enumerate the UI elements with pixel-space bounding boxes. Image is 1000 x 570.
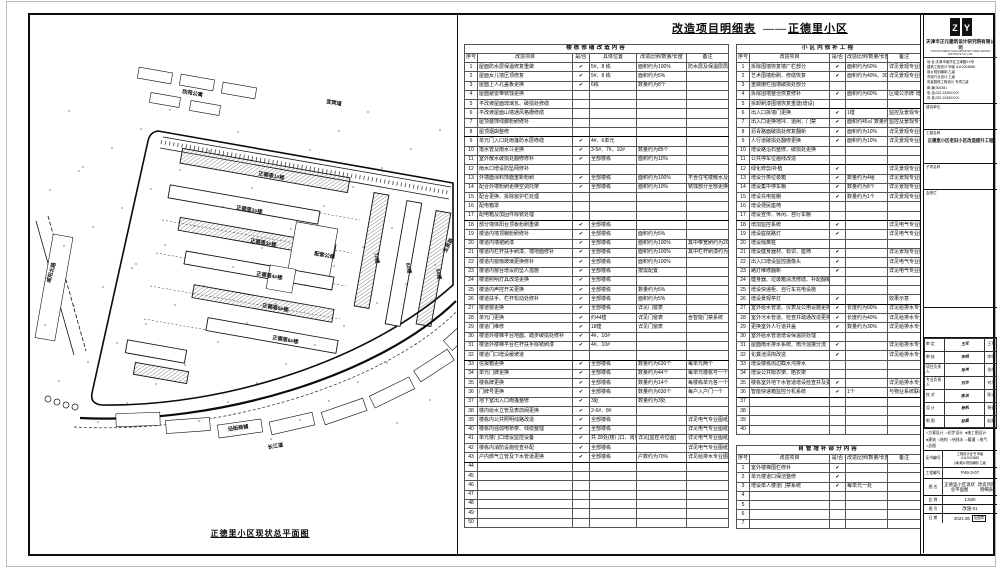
cell: 面积约为100% [637, 248, 687, 257]
cell [637, 332, 687, 341]
cell [637, 202, 687, 211]
cell: 其中栏杆刷漆约为20% [687, 248, 729, 257]
cell: 数量约为5% [637, 286, 687, 295]
cell: 效果示意 [888, 295, 921, 304]
cell: 楼道扶手、栏杆松动处修补 [478, 295, 573, 304]
cell [687, 128, 729, 137]
cell: 长度约为40% [846, 314, 888, 323]
table-row: 48 [465, 499, 729, 508]
sheet-title-sub: 正德里小区 [788, 23, 848, 35]
cell: 全部楼栋 [590, 360, 637, 369]
row-number: 13 [737, 174, 750, 183]
check-empty [573, 109, 590, 118]
cell [846, 425, 888, 434]
row-number: 5 [737, 501, 750, 510]
cell [846, 202, 888, 211]
row-number: 37 [737, 397, 750, 406]
signature-print: 刘华 [985, 377, 997, 390]
cell [846, 341, 888, 350]
sheet-number-label: 图 号 [924, 505, 943, 513]
cell [478, 518, 573, 527]
row-number: 32 [737, 351, 750, 360]
check-empty [830, 491, 846, 500]
cell: 全部楼栋 [590, 369, 637, 378]
check-empty [830, 416, 846, 425]
cell: 5#、8 栋 [590, 63, 637, 72]
cell: 数量约为8个 [637, 81, 687, 90]
table-row: 34增设公共晾衣架、晒衣架 [737, 369, 921, 378]
cell [750, 519, 830, 528]
check-mark: ✔ [573, 332, 590, 341]
cell [846, 295, 888, 304]
cell: 健身器、垃圾箱清洗修缮、补配翻新 [750, 276, 830, 285]
cell: 监控及景观专业图纸 [888, 118, 921, 127]
cell [687, 276, 729, 285]
table-row: 7屋顶装饰线脚粉刷修补 [465, 118, 729, 127]
cell: 全部楼栋 [590, 388, 637, 397]
row-number: 9 [737, 137, 750, 146]
check-empty [573, 351, 590, 360]
row-number: 38 [465, 406, 478, 415]
check-empty [830, 397, 846, 406]
cell [750, 416, 830, 425]
check-mark: ✔ [830, 351, 846, 360]
table-row: 39楼栋内公共照明线路改造✔全部楼栋详见电气专业图纸 [465, 416, 729, 425]
table-row: 8屋顶烟囱整修 [465, 128, 729, 137]
cell: 绿化修剪/补植 [750, 165, 830, 174]
check-mark: ✔ [573, 267, 590, 276]
column-header: 备注 [687, 54, 729, 63]
row-number: 5 [737, 100, 750, 109]
check-empty [830, 360, 846, 369]
cell: 外墙面涂料饰面重新粉刷 [478, 174, 573, 183]
cell [888, 482, 921, 491]
column-header: 是/否 [830, 54, 846, 63]
column-header: 改造项目 [478, 54, 573, 63]
table-row: 11公共停车位画线改造 [737, 155, 921, 164]
cell: 详见电气专业图纸 [687, 444, 729, 453]
cell: 全部楼栋 [590, 295, 637, 304]
table-row: 8沥青路面破损处修复翻新✔面积约为10%详见景观专业图纸 [737, 128, 921, 137]
cell [888, 286, 921, 295]
cell: 楼道内墙裙刷漆 [478, 239, 573, 248]
check-mark: ✔ [830, 314, 846, 323]
table-row: 40楼栋内强弱电桥架、线缆整理✔全部楼栋详见电气专业图纸 [465, 425, 729, 434]
building [179, 74, 214, 91]
row-number: 20 [465, 239, 478, 248]
certificate-label: 证书编号 [924, 451, 943, 467]
cell [637, 444, 687, 453]
cell: 单元门更换 [478, 314, 573, 323]
cell: 楼道内栏杆扶手刷漆、墙地面修补 [478, 248, 573, 257]
check-mark: ✔ [573, 388, 590, 397]
cell [590, 109, 637, 118]
sheet-number-row: 图 号 改施-01 [924, 505, 997, 514]
cell [637, 137, 687, 146]
cell: 详见景观专业图纸 [888, 63, 921, 72]
cell: 增设景观亭灯 [750, 295, 830, 304]
table-row: 44 [465, 462, 729, 471]
table-row: 35楼栋室外地下水管道增设检查井及更换✔详见给排水专业图纸 [737, 379, 921, 388]
table-row: 15增设充电桩棚✔数量约为1个详见景观专业图纸 [737, 193, 921, 202]
table-row: 6平改坡屋面山墙通风格栅修缮 [465, 109, 729, 118]
cell [846, 397, 888, 406]
cell: 拆除围墙整治恢复修补 [750, 90, 830, 99]
project-sections: 建设单位工程名称正德里小区老旧小区改造提升工程子项名称会签栏 [924, 104, 997, 338]
cell: 全部楼栋 [590, 155, 637, 164]
cell [888, 425, 921, 434]
row-number: 7 [465, 118, 478, 127]
cell [888, 406, 921, 415]
cell [687, 202, 729, 211]
cell [590, 518, 637, 527]
cell: 屋顶装饰线脚粉刷修补 [478, 118, 573, 127]
table-row: 21增设健身器材、标识、座椅✔详见景观专业图纸 [737, 248, 921, 257]
row-number: 14 [737, 183, 750, 192]
date-value: 2021.06 出图章 [943, 514, 997, 523]
cell: 防水层及保温层局部重做 [687, 63, 729, 72]
table-header-row: 序号改造项目是/否改造比例/数量/长度备注 [737, 54, 921, 63]
cell: 户内燃气立管及下水管道更换 [478, 453, 573, 462]
signature-print: 杨帆 [985, 402, 997, 415]
row-number: 48 [465, 499, 478, 508]
row-number: 29 [737, 323, 750, 332]
cell [846, 501, 888, 510]
cell: 详见景观专业图纸 [888, 137, 921, 146]
cell: 室外给水管道、仪表及公用设施更换 [750, 304, 830, 313]
cell: 增设便民座椅 [750, 202, 830, 211]
cell: 面积约为5% [637, 230, 687, 239]
signature-role: 制 图 [925, 415, 945, 428]
row-number: 28 [737, 314, 750, 323]
check-mark: ✔ [573, 72, 590, 81]
column-header: 改造比例/数量/长度 [637, 54, 687, 63]
cell [846, 100, 888, 109]
check-mark: ✔ [573, 137, 590, 146]
cell [888, 519, 921, 528]
cell: 每单元两个 [687, 360, 729, 369]
cell [590, 472, 637, 481]
row-number: 47 [465, 490, 478, 499]
check-empty [830, 276, 846, 285]
cell: 增加监控系统 [750, 221, 830, 230]
row-number: 21 [465, 248, 478, 257]
check-empty [830, 519, 846, 528]
cell: 增设宣传、休闲、自行车棚 [750, 211, 830, 220]
cell: 全部楼栋 [590, 425, 637, 434]
cell: 全部楼栋 [590, 304, 637, 313]
cell [637, 109, 687, 118]
cell [687, 304, 729, 313]
table-row: 36智能快递箱监控分机系统✔1个与物业系统联动 2021.06.24 [737, 388, 921, 397]
cell: 全部楼栋 [590, 453, 637, 462]
table-row: 6 [737, 510, 921, 519]
map-label: 长江道 [267, 440, 285, 451]
row-number: 40 [737, 425, 750, 434]
check-mark: ✔ [830, 267, 846, 276]
cell [637, 490, 687, 499]
table-row: 21楼道内栏杆扶手刷漆、墙地面修补✔全部楼栋面积约为100%其中栏杆刷漆约为20… [465, 248, 729, 257]
row-number: 11 [465, 155, 478, 164]
cell [750, 501, 830, 510]
cell: 拆卸刷漆围墙恢复重建(增设) [750, 100, 830, 109]
project-number-value: P46-3-07 [943, 468, 997, 478]
row-number: 30 [465, 332, 478, 341]
community-repair-table: 小区内修补工程 序号改造项目是/否改造比例/数量/长度备注 1拆除围墙恢复墙厂栏… [736, 44, 921, 435]
check-empty [573, 499, 590, 508]
check-mark: ✔ [573, 397, 590, 406]
building [137, 67, 172, 84]
row-number: 1 [737, 63, 750, 72]
cell: 路灯维修翻新 [750, 267, 830, 276]
table-row: 38 [737, 406, 921, 415]
cell [846, 155, 888, 164]
cell: 智能快递箱监控分机系统 [750, 388, 830, 397]
check-empty [830, 406, 846, 415]
row-number: 46 [465, 481, 478, 490]
cell: 落水管及雨水斗更换 [478, 146, 573, 155]
company-logo-icon: Z Y [950, 18, 972, 36]
check-mark: ✔ [830, 473, 846, 482]
building [385, 201, 421, 327]
cell: 详见门窗表 [637, 304, 687, 313]
section-子项名称: 子项名称 [924, 164, 997, 190]
cell [687, 211, 729, 220]
check-mark: ✔ [830, 323, 846, 332]
table-row: 30楼道外楼梯平台地面、踏步破损处修补✔4#、10# [465, 332, 729, 341]
check-mark: ✔ [830, 464, 846, 473]
cell: 数量约为44个 [637, 369, 687, 378]
signature-role: 审 核 [925, 351, 945, 364]
map-caption: 正德里小区现状总平面图 [150, 528, 370, 539]
row-number: 4 [737, 90, 750, 99]
check-mark: ✔ [573, 406, 590, 415]
row-number: 39 [737, 416, 750, 425]
column-header: 序号 [737, 54, 750, 63]
table-row: 42楼栋内消防设施检查补配✔全部楼栋详见电气专业图纸 [465, 444, 729, 453]
table-row: 32楼道门口增设缓坡道 [465, 351, 729, 360]
cell: 详见电气专业图纸 [687, 425, 729, 434]
row-number: 33 [737, 360, 750, 369]
project-number-row: 工程编号 P46-3-07 [924, 468, 997, 479]
table-row: 31屋面雨水排水系统、雨污混接分流✔详见给排水专业图纸 [737, 341, 921, 350]
building [288, 222, 338, 277]
signature-row: 专业负责人刘华刘华 [925, 377, 997, 390]
cell [846, 510, 888, 519]
cell [687, 518, 729, 527]
check-mark: ✔ [573, 295, 590, 304]
cell [637, 221, 687, 230]
table-row: 24健身器、垃圾箱清洗修缮、补配翻新 [737, 276, 921, 285]
check-mark: ✔ [830, 63, 846, 72]
cell: 数量约为3处 [637, 397, 687, 406]
table-row: 13增设分类垃圾箱✔数量约为4组详见景观专业图纸 [737, 174, 921, 183]
row-number: 34 [737, 369, 750, 378]
check-empty [830, 425, 846, 434]
row-number: 12 [737, 165, 750, 174]
cell: 门牌号更换 [478, 388, 573, 397]
check-empty [830, 286, 846, 295]
check-empty [830, 100, 846, 109]
building [149, 92, 180, 107]
cell: 楼栋室外地下水管道增设检查井及更换 [750, 379, 830, 388]
cell: 长度约为60% [846, 304, 888, 313]
check-mark: ✔ [830, 118, 846, 127]
cell: 屋面上人孔盖板更换 [478, 81, 573, 90]
row-number: 6 [737, 510, 750, 519]
cell: 户数约为70% [637, 453, 687, 462]
check-empty [573, 481, 590, 490]
cell: 面积约为10% [637, 155, 687, 164]
building [116, 412, 160, 427]
cell [888, 416, 921, 425]
cell [846, 286, 888, 295]
table-row: 26增设景观亭灯✔效果示意 [737, 295, 921, 304]
building-renovation-table: 楼栋修缮改造内容 序号改造项目是/否具体位置改造比例/数量/长度备注 1屋面防水… [464, 44, 729, 528]
check-mark: ✔ [573, 230, 590, 239]
table-row: 10增设路沿石整修、破损处更换 [737, 146, 921, 155]
company-contact: 地 址:天津市南开区卫津路XX号建筑工程设计 甲级 A112003688城乡规划… [924, 58, 997, 104]
table-row: 25楼道内声控开关更换✔全部楼栋数量约为5% [465, 286, 729, 295]
cell: 全部楼栋 [590, 416, 637, 425]
svg-text:Z: Z [952, 23, 958, 33]
row-number: 23 [737, 267, 750, 276]
cell: 单元楼门口增设监控设备 [478, 434, 573, 443]
table-row: 23楼道内窗台增设防坠人措施✔全部楼栋按需配置 [465, 267, 729, 276]
signature-print: 王军 [985, 338, 997, 351]
cell [846, 332, 888, 341]
cell [846, 258, 888, 267]
table-row: 15配合更换、拆除窗护栏处理 [465, 193, 729, 202]
cell: 公共停车位画线改造 [750, 155, 830, 164]
cell [478, 472, 573, 481]
title-block: Z Y 天津市正元建筑设计研究院有限公司 TIANJIN ZHENGYUAN A… [923, 15, 997, 553]
table-row: 45 [465, 472, 729, 481]
cell: 增设健身器材、标识、座椅 [750, 248, 830, 257]
certificate-section: 证书编号 工程设计证书 甲级A112003688(津)城乡规划编制 乙级 [924, 451, 997, 468]
cell [590, 462, 637, 471]
cell [687, 351, 729, 360]
cell: 全部楼栋 [590, 221, 637, 230]
table-row: 2艺术围墙粉刷、修缮恢复✔面积约为40%、30%详见景观专业图纸 [737, 72, 921, 81]
drawing-sheet: 宜宾道咸阳北路长江道玉泉路正德里1#楼正德里2#楼正德里3#楼正德里4#楼正德里… [0, 0, 1000, 570]
cell [846, 276, 888, 285]
signature-print: 赵磊 [985, 415, 997, 428]
building [269, 412, 315, 435]
cell [590, 128, 637, 137]
cell [687, 286, 729, 295]
row-number: 16 [465, 202, 478, 211]
cell [478, 499, 573, 508]
cell [637, 351, 687, 360]
cell: 详见景观专业图纸 [888, 193, 921, 202]
cell: 配合外墙粉刷更换空调托架 [478, 183, 573, 192]
cell: 楼栋内强弱电桥架、线缆整理 [478, 425, 573, 434]
cell [637, 118, 687, 127]
table-row: 41单元楼门口增设监控设备✔共 28处(楼门口、周界)详见[监控点位图]详见电气… [465, 434, 729, 443]
table-row: 27室外给水管道、仪表及公用设施更换✔长度约为60%详见给排水专业图纸 [737, 304, 921, 313]
table-row: 12绿化修剪/补植✔详见景观专业图纸 [737, 165, 921, 174]
table-row: 6出入口拆墙门更换✔1樘监控及景观专业图纸 [737, 109, 921, 118]
cell: 详见[监控点位图] [637, 434, 687, 443]
row-number: 19 [737, 230, 750, 239]
cell [888, 397, 921, 406]
cell: 详见电气专业图纸 [687, 416, 729, 425]
row-number: 35 [465, 379, 478, 388]
sheet-name-value: 正德里小区现状总平面图改造项目明细表 [943, 479, 997, 495]
row-number: 32 [465, 351, 478, 360]
cell: 与物业系统联动 2021.06.24 [888, 388, 921, 397]
check-empty [830, 211, 846, 220]
check-mark: ✔ [573, 304, 590, 313]
cell: 不含住宅楼散水及外窗口 [687, 174, 729, 183]
cell: 楼道内窗台增设防坠人措施 [478, 267, 573, 276]
check-mark: ✔ [830, 258, 846, 267]
row-number: 33 [465, 360, 478, 369]
check-mark: ✔ [573, 276, 590, 285]
cell: 信报箱更换 [478, 360, 573, 369]
table-row: 31楼道外楼梯平台栏杆扶手除锈刷漆✔4#、10# [465, 341, 729, 350]
cell [846, 239, 888, 248]
building [168, 185, 320, 224]
cell: 其中带宽刷约为20% [687, 239, 729, 248]
cell [637, 406, 687, 415]
row-number: 27 [465, 304, 478, 313]
row-number: 3 [737, 81, 750, 90]
signature-table: 审 定王军王军审 核李明李明项目负责人张伟张伟专业负责人刘华刘华校 对陈洁陈洁设… [924, 338, 997, 429]
signature-print: 李明 [985, 351, 997, 364]
table-row: 7出入口更换地坪、道闸、门禁✔面积约45㎡ 数量约2处监控及景观专业图纸 [737, 118, 921, 127]
row-number: 23 [465, 267, 478, 276]
cell: 楼道照明灯具改造更换 [478, 276, 573, 285]
cell: 锈蚀部分全部更换 [687, 183, 729, 192]
design-phase-options: ○方案设计○初步设计●施工图设计 ●建筑○结构○给排水○暖通○电气○总图 [924, 428, 997, 450]
cell [687, 499, 729, 508]
check-mark: ✔ [573, 379, 590, 388]
cell: 每楼栋单元各一个 [687, 379, 729, 388]
cell [590, 490, 637, 499]
cell: 出入口增设监控摄像头 [750, 258, 830, 267]
cell: 出入口更换地坪、道闸、门禁 [750, 118, 830, 127]
cell: 增设隔离桩 [750, 239, 830, 248]
row-number: 21 [737, 248, 750, 257]
check-empty [830, 510, 846, 519]
table-row: 32化粪池清掏改造✔详见给排水专业图纸 [737, 351, 921, 360]
cell: 详见给排水专业图纸 [888, 323, 921, 332]
cell: 详见景观专业图纸 [888, 174, 921, 183]
cell [687, 462, 729, 471]
table-header-row: 序号改造项目是/否改造比例/数量/长度备注 [737, 455, 921, 464]
sheet-title: 改造项目明细表——正德里小区 [620, 20, 900, 36]
cell [846, 360, 888, 369]
table-row: 2屋面女儿墙压顶修复✔5#、8 栋面积约为5% [465, 72, 729, 81]
check-empty [573, 118, 590, 127]
cell [637, 100, 687, 109]
cell: 单元门入口处雨篷防水层修缮 [478, 137, 573, 146]
check-mark: ✔ [573, 174, 590, 183]
check-empty [830, 202, 846, 211]
row-number: 18 [465, 221, 478, 230]
cell [687, 193, 729, 202]
signature-row: 制 图赵磊赵磊 [925, 415, 997, 428]
check-mark: ✔ [573, 360, 590, 369]
cell: 全部楼栋 [590, 174, 637, 183]
table-row: 9人行道破损处翻修更换✔面积约为10%详见景观专业图纸 [737, 137, 921, 146]
cell: 增设公共晾衣架、晒衣架 [750, 369, 830, 378]
row-number: 45 [465, 472, 478, 481]
row-number: 49 [465, 509, 478, 518]
building [133, 362, 188, 383]
